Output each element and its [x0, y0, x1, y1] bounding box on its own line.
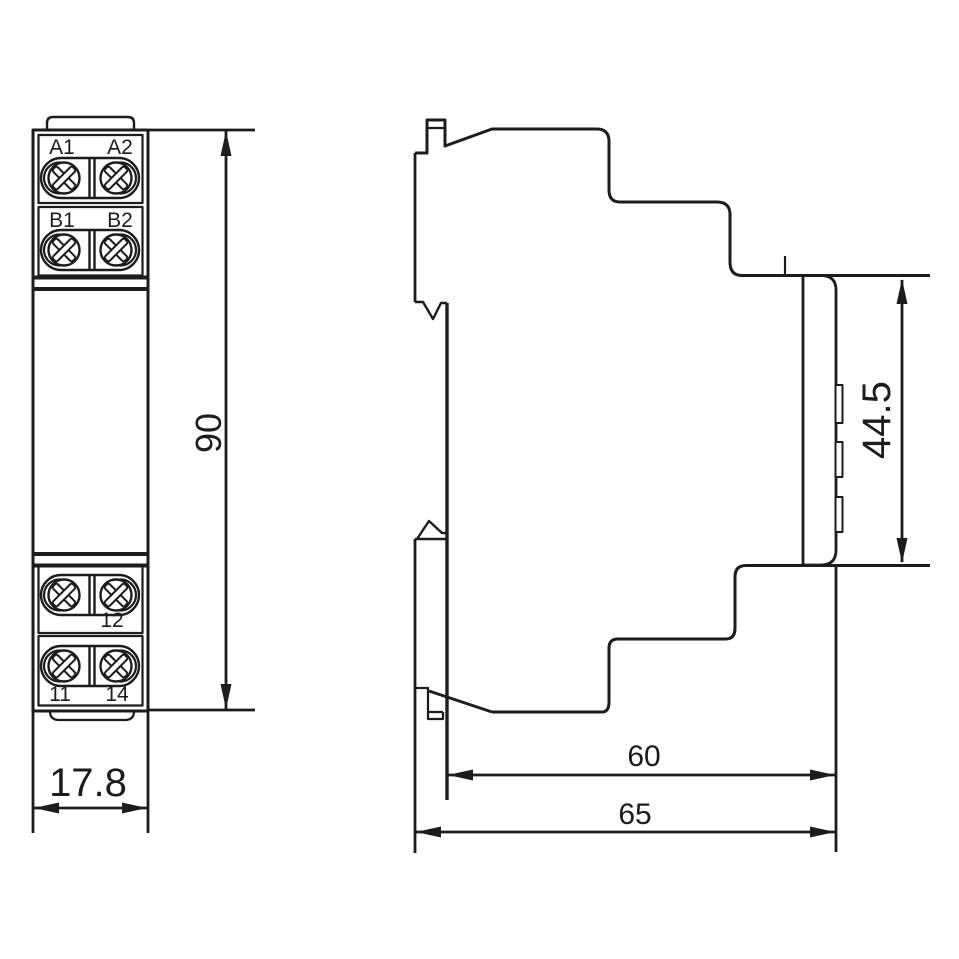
terminal-label-12: 12	[100, 609, 123, 632]
dimension-65: 65	[416, 798, 835, 838]
screw-icon	[101, 163, 137, 194]
din-spring-clip	[415, 521, 447, 719]
arrowhead-right	[810, 770, 835, 781]
screw-icon	[101, 235, 137, 266]
front-separation-bands	[33, 278, 148, 566]
dimension-value-44-5: 44.5	[855, 381, 899, 459]
arrowhead-right	[810, 827, 835, 838]
dimension-90: 90	[148, 130, 255, 710]
terminal-label-14: 14	[105, 683, 129, 706]
dimension-17-8: 17.8	[33, 711, 148, 833]
din-relay-dimension-drawing: A1 A2 B1 B2 12 11 14 90 17.8	[0, 0, 959, 959]
dimension-value-90: 90	[188, 413, 229, 453]
front-top-cap	[47, 117, 134, 130]
terminal-label-b2: B2	[107, 209, 133, 232]
dimension-value-65: 65	[618, 798, 651, 831]
screw-icon	[44, 235, 80, 266]
arrowhead-left	[416, 827, 441, 838]
terminal-label-11: 11	[49, 683, 71, 706]
technical-drawing-page: A1 A2 B1 B2 12 11 14 90 17.8	[0, 0, 959, 959]
panel-clip-tabs	[836, 385, 843, 532]
arrowhead-up	[221, 131, 232, 156]
front-view	[33, 117, 148, 720]
terminal-label-a2: A2	[107, 136, 133, 159]
screw-icon	[101, 651, 137, 682]
dimension-60: 60	[448, 740, 835, 781]
dimension-value-17-8: 17.8	[49, 761, 127, 805]
side-front-panel	[803, 276, 836, 566]
side-bottom-profile	[492, 566, 930, 713]
arrowhead-down	[221, 684, 232, 709]
clip-slope-line	[429, 691, 492, 712]
arrowhead-down	[897, 538, 908, 563]
side-top-profile	[415, 120, 930, 276]
side-view	[415, 120, 930, 853]
arrowhead-up	[897, 279, 908, 304]
terminal-label-a1: A1	[49, 136, 75, 159]
dimension-44-5: 44.5	[855, 279, 908, 563]
screw-icon	[44, 580, 80, 611]
arrowhead-left	[448, 770, 473, 781]
dimension-value-60: 60	[627, 740, 660, 773]
terminal-label-b1: B1	[49, 209, 75, 232]
screw-icon	[44, 163, 80, 194]
screw-icon	[44, 651, 80, 682]
din-catch-notch	[415, 302, 447, 319]
screw-icon	[101, 580, 137, 611]
